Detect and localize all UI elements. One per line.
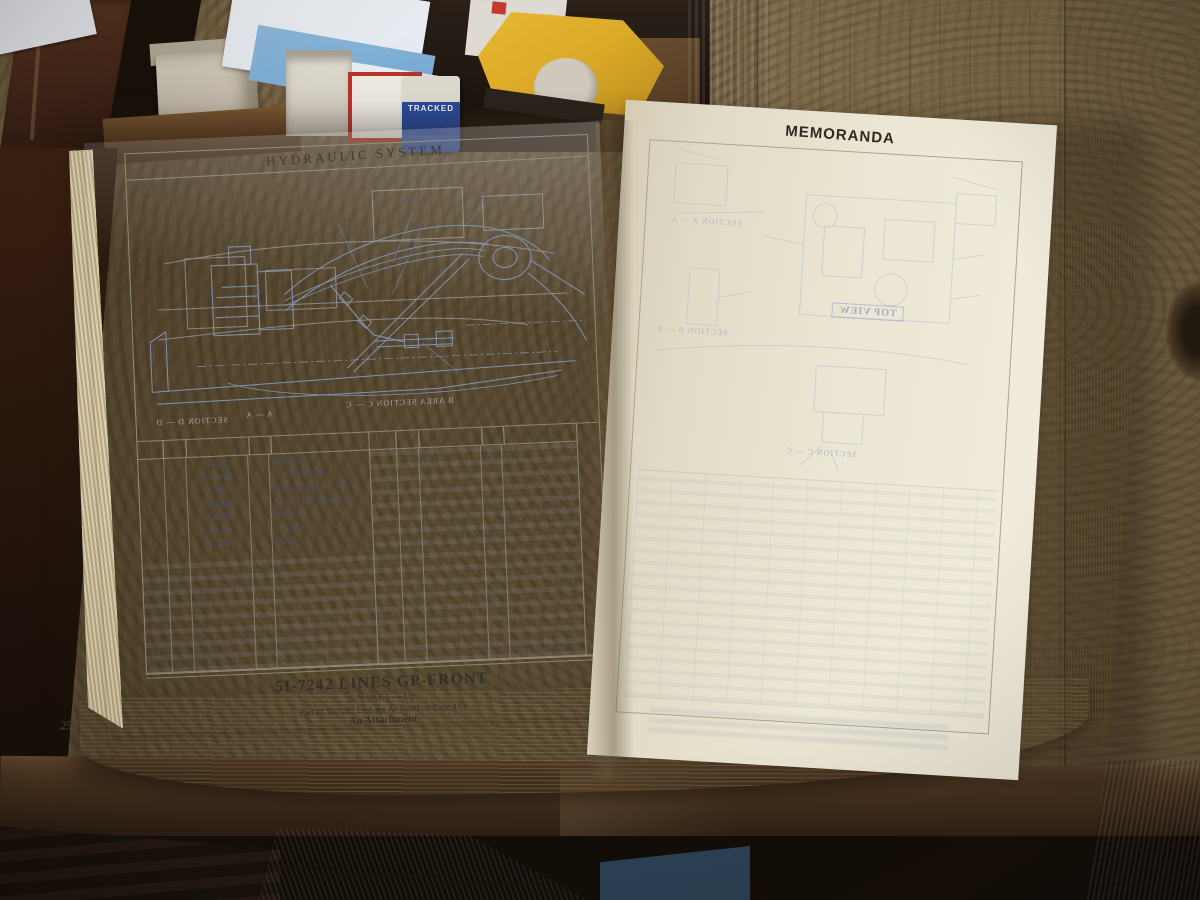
col-part-no: PART No. [186, 437, 250, 457]
table-body: 15I-72431TUBE AS 26V-86351CONNECTOR 35K-… [137, 450, 378, 674]
col-note: NOTE [369, 431, 397, 449]
col-qty: QTY [249, 436, 272, 454]
callout-5: 5 [415, 221, 420, 231]
table-body-empty [370, 442, 586, 664]
right-page-bleedthrough-sketch [634, 145, 1018, 486]
right-page: MEMORANDA SECTION A — A SECTION B — B SE… [587, 100, 1057, 780]
table-group-1: NOTE No. PART No. QTY PART NAME 15I-7243… [136, 432, 379, 674]
book-gutter-shadow [586, 120, 634, 780]
hydraulic-diagram [129, 162, 593, 433]
table-group-2: NOTE No. PART No. QTY PART NAME [369, 424, 587, 665]
col-note: NOTE [136, 441, 164, 459]
red-logo-mark [491, 1, 506, 14]
callout-2-3-4: 2-3-4 [398, 195, 419, 206]
callout-1: 1 [327, 209, 332, 219]
bleed-label-a-a: A — A [245, 409, 273, 419]
plate-code: H35076E [509, 645, 551, 656]
tracked-label: TRACKED [404, 104, 458, 113]
right-page-bleedthrough-table [624, 469, 997, 718]
col-no: No. [396, 430, 420, 448]
callout-7: 7 [454, 370, 459, 380]
col-part-no: PART No. [419, 428, 483, 448]
table-bleedthrough [370, 442, 586, 664]
callout-4-6: 4-6 [476, 192, 489, 203]
col-no: No. [163, 440, 187, 458]
table-bleedthrough [141, 550, 378, 674]
col-qty: QTY [482, 427, 505, 445]
parts-table: NOTE No. PART No. QTY PART NAME 15I-7243… [136, 422, 607, 674]
page-number: 258 [60, 718, 79, 734]
col-part-name: PART NAME [504, 424, 577, 444]
left-page: HYDRAULIC SYSTEM [84, 121, 624, 736]
